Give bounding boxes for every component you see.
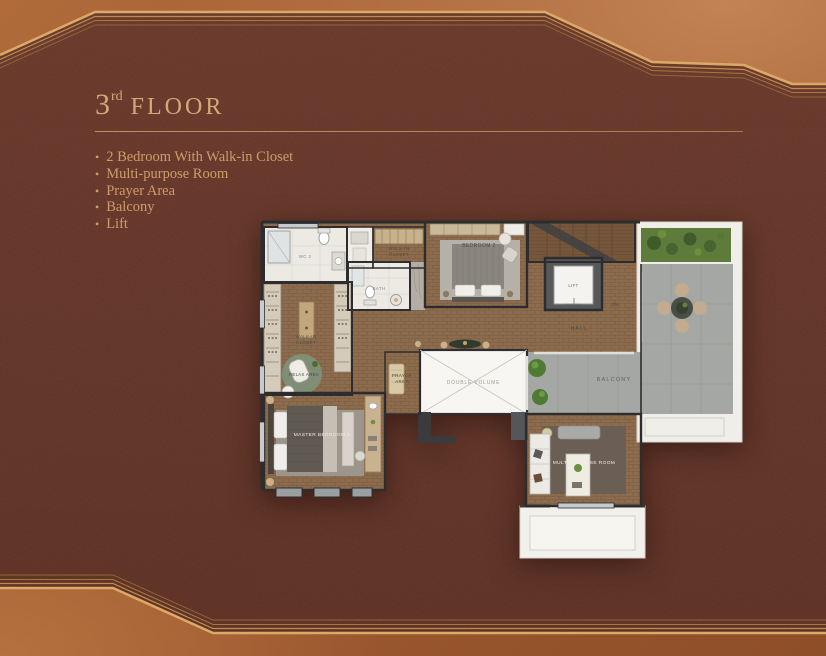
feature-text: 2 Bedroom With Walk-in Closet: [106, 149, 293, 165]
headboard: [268, 404, 274, 474]
balcony-middle: [527, 352, 641, 414]
feature-text: Balcony: [106, 199, 154, 215]
parapet-step: [418, 412, 431, 436]
feature-text: Lift: [106, 216, 128, 232]
window-bay: [314, 488, 340, 497]
parapet-step: [418, 436, 456, 443]
bed-throw: [323, 406, 337, 472]
floor-plan: WC 2 WALK-IN CLOSET BATH BEDROOM 2 LIFT …: [258, 216, 744, 568]
room-label-walkin-top-1: WALK-IN: [389, 246, 410, 251]
pillow-icon: [274, 412, 287, 438]
room-label-multipurpose: MULTI-PURPOSE ROOM: [553, 460, 616, 466]
bullet-icon: •: [95, 184, 99, 198]
nightstand-icon: [266, 478, 274, 486]
pillow-icon: [455, 285, 475, 296]
plant-icon: [532, 389, 548, 405]
plant-icon: [312, 361, 318, 367]
room-label-walkin-left-2: CLOSET: [296, 340, 316, 345]
chair-icon: [657, 301, 671, 315]
double-volume: [418, 350, 528, 443]
floor-number: 3: [95, 88, 111, 121]
floor-ordinal: rd: [111, 89, 123, 104]
bench-icon: [558, 426, 600, 439]
terrace: [637, 222, 742, 442]
title-underline: [95, 131, 743, 132]
stool-icon: [483, 342, 490, 349]
bench-icon: [342, 412, 354, 466]
room-label-prayer-1: PRAYER: [392, 373, 412, 378]
bullet-icon: •: [95, 167, 99, 181]
room-label-prayer-2: AREA: [395, 379, 409, 384]
floor-plan-drawing: WC 2 WALK-IN CLOSET BATH BEDROOM 2 LIFT …: [258, 216, 744, 568]
nightstand-icon: [266, 396, 274, 404]
cushion: [533, 473, 542, 482]
stool-icon: [441, 342, 448, 349]
feature-item: •Balcony: [95, 199, 293, 216]
room-walkin-top: [375, 229, 423, 244]
pillow-icon: [274, 444, 287, 470]
room-label-lift: LIFT: [568, 283, 578, 288]
plant-icon: [528, 359, 546, 377]
headboard: [452, 297, 504, 302]
chair-icon: [675, 319, 689, 333]
wardrobe-icon: [264, 284, 281, 394]
toilet-icon: [319, 232, 329, 245]
room-bath: [348, 262, 425, 310]
pillow-icon: [481, 285, 501, 296]
marble-wall: [410, 262, 425, 310]
bullet-icon: •: [95, 217, 99, 231]
bullet-icon: •: [95, 200, 99, 214]
feature-text: Multi-purpose Room: [106, 166, 228, 182]
ac-unit-icon: [351, 232, 368, 244]
closet-strip: [430, 224, 500, 235]
balcony-bottom: [520, 506, 645, 558]
feature-item: •Multi-purpose Room: [95, 166, 293, 183]
room-label-walkin-top-2: CLOSET: [389, 252, 409, 257]
page-title: 3rdFLOOR: [95, 88, 224, 122]
chair-icon: [355, 451, 365, 461]
room-label-bath: BATH: [373, 286, 386, 291]
nightstand-icon: [443, 291, 449, 297]
floor-word: FLOOR: [131, 94, 225, 120]
armchair-icon: [499, 233, 511, 245]
room-label-master-bedroom: MASTER BEDROOM 2: [294, 432, 351, 438]
window-bay: [276, 488, 302, 497]
stool-icon: [415, 341, 421, 347]
room-label-wc2: WC 2: [299, 254, 312, 259]
feature-text: Prayer Area: [106, 183, 175, 199]
feature-item: •Prayer Area: [95, 183, 293, 200]
island-dresser-icon: [299, 302, 314, 338]
room-bedroom2: [425, 222, 527, 307]
room-label-hall: HALL: [571, 326, 588, 332]
bullet-icon: •: [95, 150, 99, 164]
slide: 3rdFLOOR •2 Bedroom With Walk-in Closet …: [0, 0, 826, 656]
room-label-dn: DN: [612, 302, 619, 307]
stairs: [528, 222, 635, 262]
room-label-balcony: BALCONY: [597, 377, 632, 383]
chair-icon: [693, 301, 707, 315]
window-bay: [352, 488, 372, 497]
room-label-walkin-left-1: WALK-IN: [296, 334, 317, 339]
bed-icon: [452, 244, 504, 289]
feature-item: •2 Bedroom With Walk-in Closet: [95, 149, 293, 166]
room-label-relax: RELAX AREA: [289, 372, 319, 377]
room-label-bedroom2: BEDROOM 2: [462, 243, 496, 249]
chair-icon: [675, 283, 689, 297]
room-label-double-volume: DOUBLE VOLUME: [447, 380, 500, 386]
shower-icon: [352, 266, 364, 286]
nightstand-icon: [507, 291, 513, 297]
